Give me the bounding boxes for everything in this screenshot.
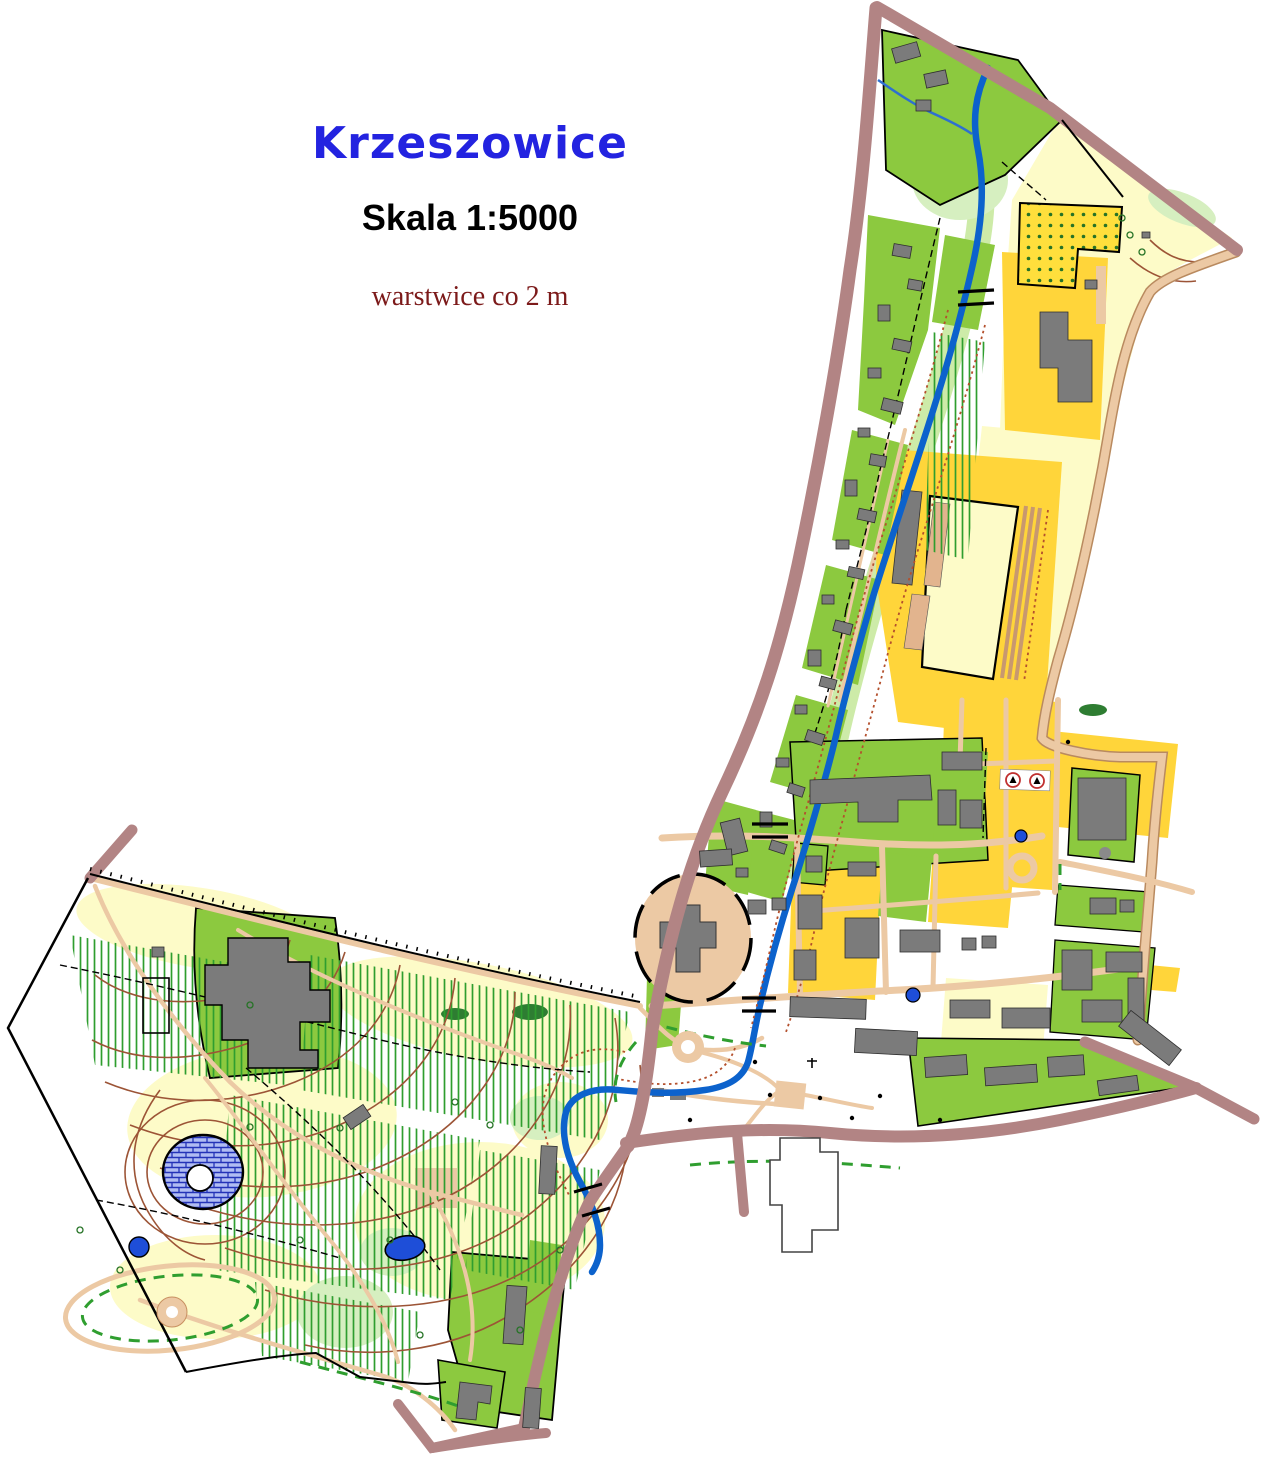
building [1082, 1000, 1122, 1022]
map-scale: Skala 1:5000 [270, 197, 670, 239]
building [960, 800, 982, 828]
building [984, 1064, 1037, 1086]
building [907, 279, 923, 291]
building [1047, 1055, 1084, 1077]
building [1142, 232, 1150, 238]
building [503, 1285, 527, 1344]
building [790, 997, 867, 1020]
fountain [906, 988, 920, 1002]
building [772, 898, 786, 910]
fountain [1015, 830, 1027, 842]
building [808, 650, 821, 666]
building [942, 752, 982, 770]
building [845, 480, 857, 496]
roundabout-center [681, 1040, 695, 1054]
cross-symbol [807, 1058, 817, 1068]
pond [129, 1237, 149, 1257]
building [938, 790, 956, 825]
building [878, 305, 890, 321]
building [868, 368, 881, 378]
building [1085, 280, 1097, 289]
building [924, 1055, 967, 1078]
building [848, 862, 876, 876]
building [776, 758, 789, 767]
monument-icon [1030, 774, 1044, 788]
page: Krzeszowice Skala 1:5000 warstwice co 2 … [0, 0, 1265, 1471]
building [1062, 950, 1092, 990]
gray-tree [1099, 847, 1111, 859]
building [892, 244, 912, 259]
building [1106, 952, 1142, 972]
building [1078, 778, 1126, 840]
monument-icon [1006, 773, 1020, 787]
town-stub-road [737, 1133, 744, 1212]
building [982, 936, 996, 948]
plaza-square [774, 1081, 807, 1110]
building [854, 1028, 917, 1055]
thicket [1079, 704, 1107, 716]
courtyard-path [1096, 266, 1106, 324]
building [748, 900, 766, 914]
plaza-path [745, 1092, 778, 1128]
map-contour-note: warstwice co 2 m [270, 281, 670, 313]
building [795, 705, 807, 714]
building [900, 930, 940, 952]
building [1120, 900, 1134, 912]
street [882, 846, 886, 992]
pale-green-blob [695, 1270, 815, 1350]
building [869, 454, 887, 468]
building [699, 849, 732, 867]
building [950, 1000, 990, 1018]
south-road-stub [432, 1433, 546, 1448]
building [916, 100, 931, 111]
building [858, 428, 870, 437]
building [1002, 1008, 1050, 1028]
street [933, 856, 936, 988]
building [794, 950, 816, 980]
building [806, 856, 822, 872]
building [798, 895, 822, 929]
out-of-bounds-building-outline [770, 1138, 838, 1252]
building [836, 540, 849, 549]
building [539, 1146, 557, 1195]
building [845, 918, 879, 958]
building [523, 1387, 542, 1428]
building [822, 595, 834, 604]
title-block: Krzeszowice Skala 1:5000 warstwice co 2 … [270, 118, 670, 313]
pond-island [187, 1165, 213, 1191]
building [1090, 898, 1116, 914]
plaza-path [805, 1095, 872, 1108]
forest-se-triangle [908, 1038, 1192, 1126]
nw-road-stub [90, 830, 132, 878]
building [736, 868, 748, 877]
building [152, 947, 164, 957]
stripe-area [255, 1282, 420, 1382]
roundabout-center [166, 1306, 178, 1318]
map-title: Krzeszowice [270, 118, 670, 169]
building [962, 938, 976, 950]
